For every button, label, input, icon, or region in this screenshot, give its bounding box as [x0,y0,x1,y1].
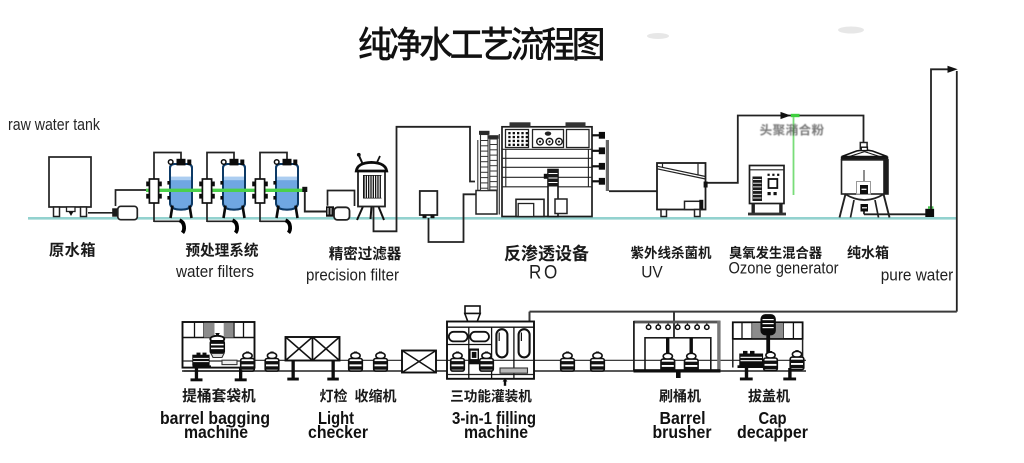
svg-text:raw water tank: raw water tank [8,116,101,134]
svg-text:checker: checker [308,422,368,442]
svg-text:Ozone generator: Ozone generator [729,259,839,278]
svg-text:machine: machine [464,422,528,442]
svg-text:UV: UV [641,263,663,282]
svg-text:RO: RO [529,263,560,284]
svg-text:pure water: pure water [881,266,954,285]
svg-text:machine: machine [184,422,248,442]
svg-text:water filters: water filters [175,262,254,281]
svg-text:precision filter: precision filter [306,266,399,285]
svg-text:brusher: brusher [653,422,712,442]
svg-text:decapper: decapper [737,422,808,442]
